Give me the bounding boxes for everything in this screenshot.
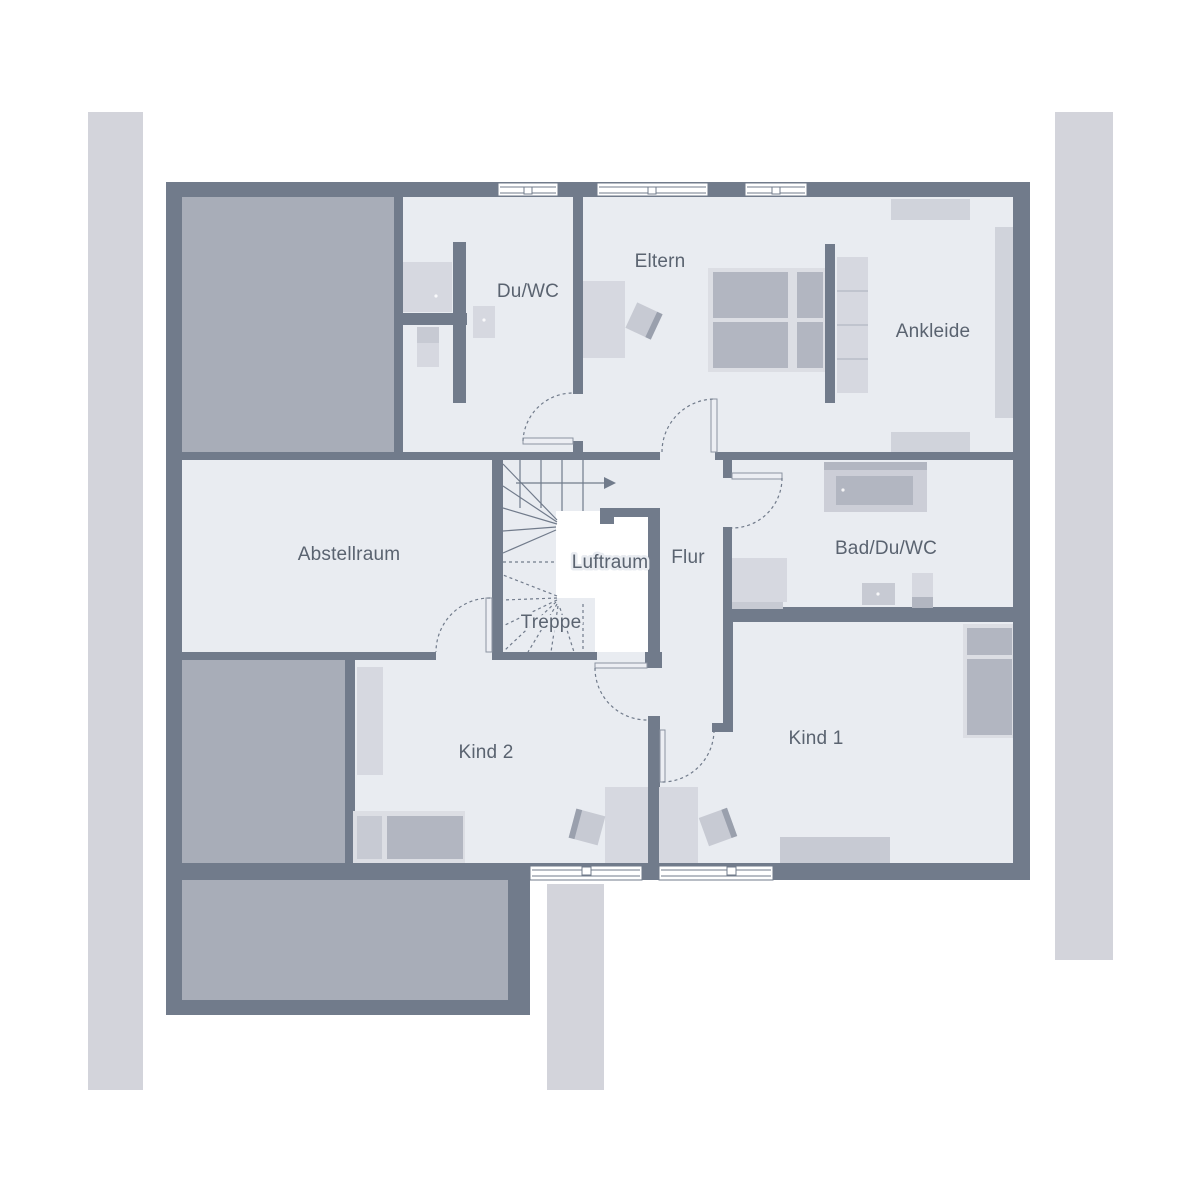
closet-bottom (891, 432, 970, 452)
pillow (797, 272, 823, 318)
mattress (713, 322, 788, 368)
label-ankleide: Ankleide (896, 321, 970, 342)
window (530, 866, 642, 880)
pillow (967, 628, 1012, 655)
pillow (357, 816, 382, 859)
floor-plan: Du/WC Eltern Ankleide Abstellraum Luftra… (0, 0, 1200, 1200)
closet-top (891, 199, 970, 220)
label-luftraum: Luftraum (572, 552, 649, 573)
label-eltern: Eltern (635, 251, 686, 272)
label-bad-du-wc: Bad/Du/WC (835, 538, 937, 559)
site-strip-left (88, 112, 143, 1090)
label-flur: Flur (671, 547, 705, 568)
luftraum-wall-cap (600, 508, 614, 524)
wardrobe-right (995, 227, 1013, 418)
plumbing-wall (453, 242, 466, 403)
pillow (797, 322, 823, 368)
desk (659, 787, 698, 863)
shower-tray (732, 602, 783, 609)
roof-void-mid-left (182, 660, 345, 863)
shower (732, 558, 787, 602)
toilet-bowl (417, 343, 439, 367)
window (745, 183, 807, 196)
label-treppe: Treppe (521, 612, 582, 633)
luftraum-right-wall (648, 508, 660, 653)
mattress (387, 816, 463, 859)
sink (473, 306, 495, 338)
toilet-tank (417, 327, 439, 343)
roof-void-bottom-left (182, 880, 508, 1000)
window (498, 183, 558, 196)
window (659, 866, 773, 880)
floor-plan-page: Du/WC Eltern Ankleide Abstellraum Luftra… (0, 0, 1200, 1200)
toilet-bowl (912, 573, 933, 597)
sideboard (780, 837, 890, 863)
label-abstellraum: Abstellraum (298, 544, 401, 565)
windows-top (498, 183, 807, 196)
mattress (713, 272, 788, 318)
site-strip-right (1055, 112, 1113, 960)
window (597, 183, 708, 196)
toilet-tank (912, 597, 933, 608)
mattress (967, 659, 1012, 735)
washing-machine (403, 262, 452, 312)
desk (605, 787, 648, 863)
dresser (583, 281, 625, 358)
label-du-wc: Du/WC (497, 281, 559, 302)
chimney-strip (547, 884, 604, 1090)
bathtub-basin (836, 476, 913, 505)
wardrobe (357, 667, 383, 775)
label-kind2: Kind 2 (458, 742, 513, 763)
label-kind1: Kind 1 (788, 728, 843, 749)
roof-void-top-left (182, 197, 394, 452)
